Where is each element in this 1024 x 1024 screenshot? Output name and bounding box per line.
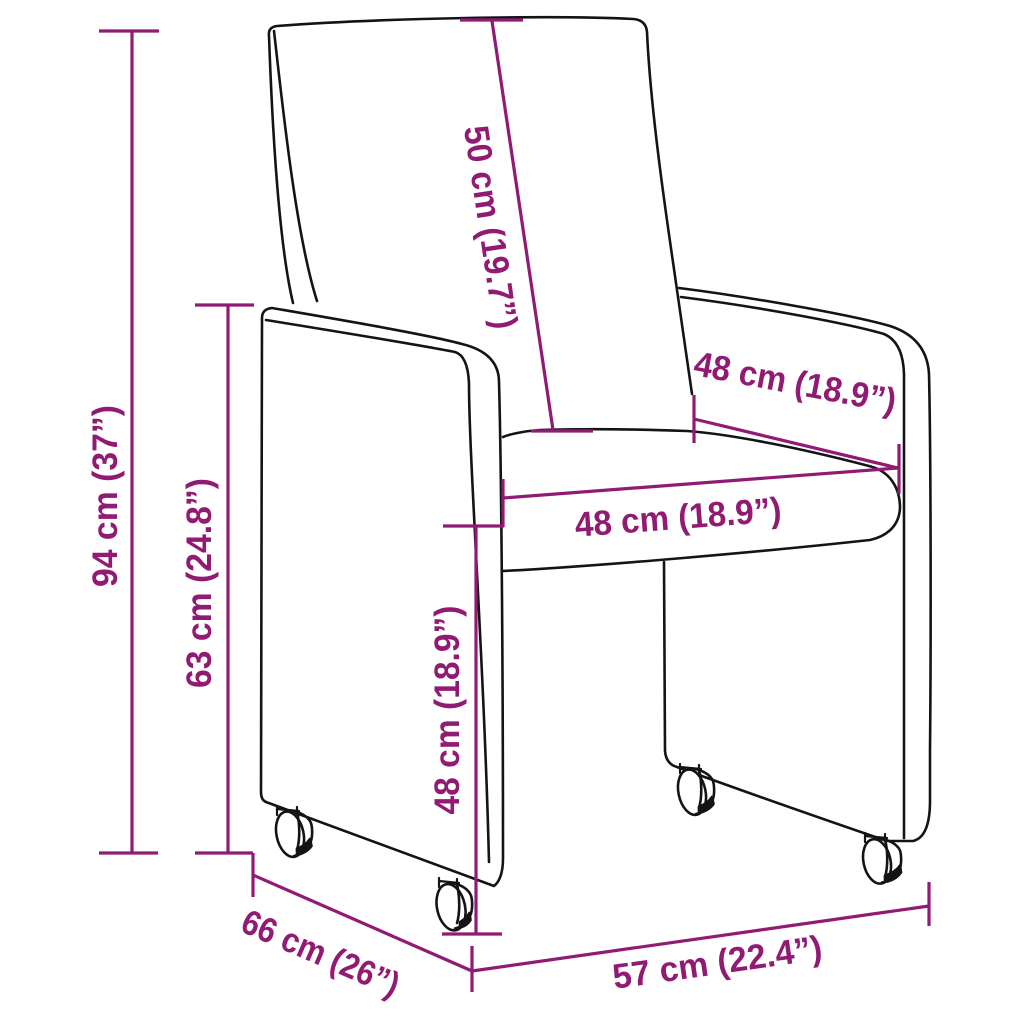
svg-text:48 cm (18.9”): 48 cm (18.9”)	[428, 606, 467, 815]
svg-text:94 cm (37”): 94 cm (37”)	[86, 405, 125, 587]
svg-text:63 cm (24.8”): 63 cm (24.8”)	[180, 478, 219, 688]
